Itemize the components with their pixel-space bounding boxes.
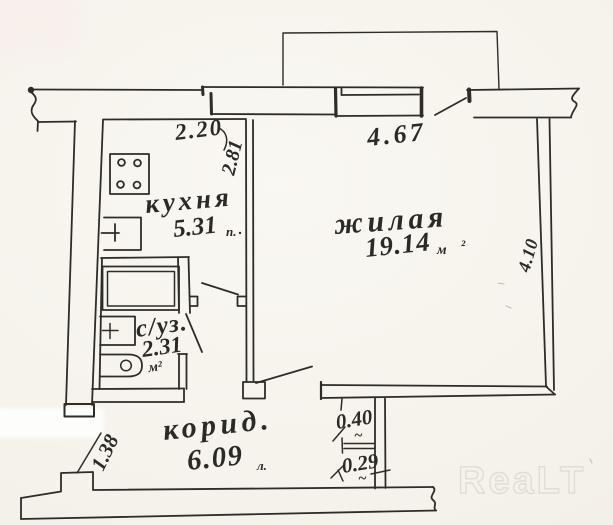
svg-text:1.38: 1.38	[86, 430, 124, 474]
svg-text:19.14: 19.14	[363, 226, 432, 263]
svg-text:5.31: 5.31	[172, 212, 218, 243]
svg-text:п.: п.	[226, 224, 236, 239]
svg-text:4.10: 4.10	[513, 236, 542, 275]
svg-text:4.67: 4.67	[365, 117, 428, 152]
svg-text:м: м	[436, 243, 447, 258]
svg-text:~: ~	[358, 471, 367, 487]
svg-text:2.31: 2.31	[139, 332, 183, 362]
svg-text:ReaLT: ReaLT	[458, 460, 586, 502]
svg-text:6.09: 6.09	[185, 439, 245, 477]
svg-text:2.20: 2.20	[173, 114, 225, 145]
svg-text:²: ²	[461, 239, 466, 254]
svg-text:корид.: корид.	[161, 403, 274, 447]
svg-text:л.: л.	[256, 458, 267, 473]
svg-text:м²: м²	[146, 359, 164, 376]
svg-text:2.81: 2.81	[217, 138, 247, 178]
svg-text:~: ~	[354, 428, 363, 444]
